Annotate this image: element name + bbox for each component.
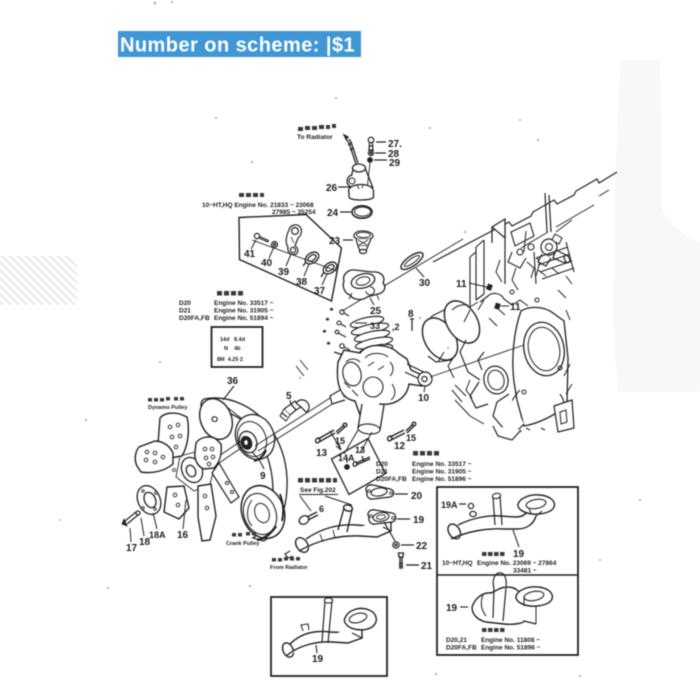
- svg-text:D20FA,FB: D20FA,FB: [376, 476, 407, 483]
- svg-text:Engine No. 33517 ~: Engine No. 33517 ~: [412, 461, 472, 468]
- svg-text:D20: D20: [376, 461, 388, 468]
- svg-text:D21: D21: [179, 308, 191, 315]
- svg-text:25: 25: [370, 306, 382, 317]
- svg-text:19: 19: [513, 549, 525, 560]
- svg-text:21: 21: [421, 561, 433, 572]
- svg-text:26: 26: [326, 183, 338, 194]
- svg-text:40: 40: [261, 258, 273, 269]
- svg-text:8M 4.25 2: 8M 4.25 2: [217, 357, 243, 363]
- svg-text:Engine No. 51896 ~: Engine No. 51896 ~: [412, 476, 472, 483]
- svg-text:Dynamo Pulley: Dynamo Pulley: [148, 405, 188, 411]
- svg-text:5: 5: [286, 391, 292, 402]
- svg-text:29: 29: [389, 158, 401, 169]
- svg-text:See Fig.202: See Fig.202: [300, 487, 336, 494]
- svg-text:33: 33: [370, 321, 380, 331]
- svg-text:15: 15: [335, 436, 345, 446]
- svg-text:36: 36: [227, 376, 239, 387]
- svg-text:Engine No. 31905 ~: Engine No. 31905 ~: [412, 469, 472, 476]
- svg-text:15: 15: [406, 433, 416, 443]
- svg-text:30: 30: [419, 278, 431, 289]
- svg-text:19: 19: [446, 603, 458, 614]
- svg-text:38: 38: [296, 277, 308, 288]
- svg-text:Crank Pulley: Crank Pulley: [226, 541, 260, 547]
- svg-text:12: 12: [394, 441, 406, 452]
- svg-text:10: 10: [418, 393, 430, 404]
- svg-text:13: 13: [316, 448, 328, 459]
- svg-text:D20: D20: [179, 300, 191, 307]
- svg-text:Engine No. 33517 ~: Engine No. 33517 ~: [214, 300, 274, 307]
- svg-text:,2: ,2: [392, 322, 400, 332]
- svg-text:From Radiator: From Radiator: [270, 565, 308, 571]
- svg-text:D20FA,FB: D20FA,FB: [446, 645, 477, 652]
- svg-text:16: 16: [177, 530, 189, 541]
- svg-text:10~HT,HQ Engine No. 21833 ~ 2: 10~HT,HQ Engine No. 21833 ~ 23068: [202, 202, 314, 209]
- svg-text:N 4b: N 4b: [224, 346, 241, 352]
- svg-text:D20,21: D20,21: [446, 637, 467, 644]
- svg-text:D21: D21: [376, 469, 388, 476]
- svg-text:D20FA,FB: D20FA,FB: [179, 315, 210, 322]
- svg-text:19: 19: [312, 654, 324, 665]
- svg-text:37: 37: [314, 286, 326, 297]
- svg-text:22: 22: [416, 541, 428, 552]
- svg-text:9: 9: [260, 471, 266, 482]
- svg-text:18A: 18A: [149, 530, 166, 540]
- svg-text:20: 20: [411, 491, 423, 502]
- svg-text:17: 17: [126, 543, 138, 554]
- svg-text:19: 19: [413, 515, 425, 526]
- svg-text:Engine No. 51894 ~: Engine No. 51894 ~: [214, 315, 274, 322]
- svg-text:To Radiator: To Radiator: [297, 134, 333, 141]
- svg-text:Engine No. 11808 ~: Engine No. 11808 ~: [481, 637, 540, 644]
- svg-text:11: 11: [510, 302, 521, 313]
- svg-text:13: 13: [355, 445, 365, 455]
- svg-text:33481 ~: 33481 ~: [513, 568, 537, 575]
- svg-text:Engine No. 31905 ~: Engine No. 31905 ~: [214, 308, 274, 315]
- svg-text:19A: 19A: [441, 500, 458, 510]
- svg-text:39: 39: [278, 267, 290, 278]
- svg-text:14d 8.4d: 14d 8.4d: [220, 337, 245, 343]
- svg-text:6: 6: [319, 504, 324, 514]
- svg-text:41: 41: [244, 249, 256, 260]
- svg-text:10~HT,HQ: 10~HT,HQ: [442, 560, 473, 567]
- svg-text:Engine No. 23069 ~ 27864: Engine No. 23069 ~ 27864: [477, 560, 557, 567]
- svg-text:24: 24: [327, 208, 339, 219]
- svg-text:11: 11: [456, 279, 467, 290]
- svg-text:Engine No. 51896 ~: Engine No. 51896 ~: [481, 645, 541, 652]
- svg-text:8: 8: [408, 309, 414, 320]
- svg-text:Number on scheme: |$1: Number on scheme: |$1: [120, 35, 355, 57]
